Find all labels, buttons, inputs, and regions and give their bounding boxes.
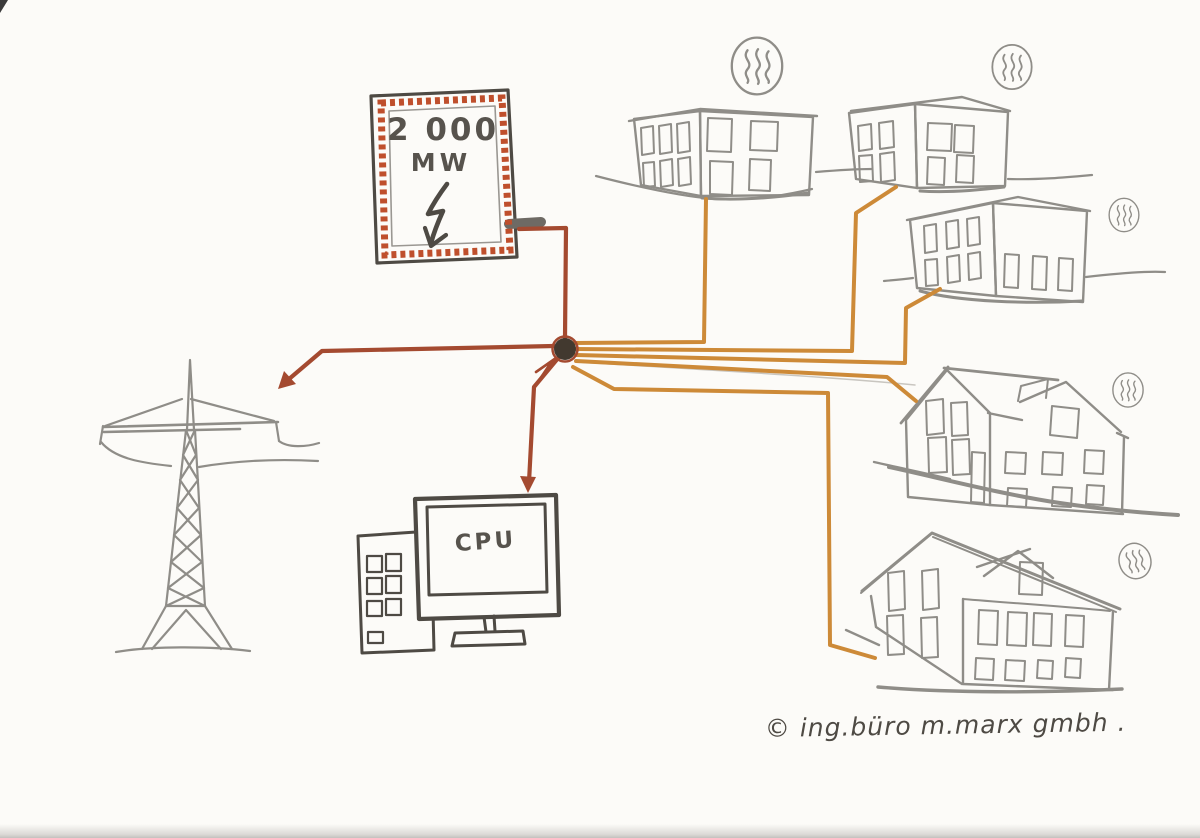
cpu-unit (358, 495, 559, 653)
cable-node-to-cpu (529, 357, 559, 482)
pylon-ground (116, 647, 250, 652)
building-5 (861, 533, 1120, 690)
building-2-roof-line (851, 97, 1010, 111)
power-pylon (100, 360, 319, 652)
cable-plant-to-node (519, 228, 566, 338)
ground-building-5-left (846, 630, 879, 645)
plant-unit-label: MW (411, 148, 471, 177)
pylon-crossarm (103, 422, 278, 432)
heat-cable-building-2 (575, 187, 896, 351)
heat-cable-building-1 (574, 199, 706, 343)
scan-corner-mark (0, 0, 8, 13)
building-4-front-wall (988, 413, 1128, 514)
arrowheads (278, 371, 536, 493)
plant-outlet-stub (509, 222, 541, 224)
heat-cable-building-5 (573, 367, 875, 658)
building-4 (901, 367, 1128, 514)
cpu-tower-buttons (367, 554, 401, 643)
building-4-dormer (1018, 379, 1048, 401)
building-2-front-wall (915, 104, 1008, 188)
heat-waves-icon (1115, 540, 1155, 583)
pylon-legs (142, 606, 232, 649)
building-1-front-wall (700, 111, 813, 196)
heat-waves-icon (1113, 373, 1143, 407)
paper-edge-shadow (0, 824, 1200, 838)
building-4-cross-gable (1020, 382, 1121, 432)
building-2 (849, 97, 1010, 188)
heat-cables (573, 187, 940, 658)
building-1-windows (641, 118, 778, 195)
pylon-lattice-b (166, 430, 204, 606)
power-heat-distribution-sketch: 2 000 MW CPU © ing.büro m.marx gmbh . (0, 0, 1200, 838)
building-3 (907, 197, 1090, 302)
building-1 (629, 109, 817, 196)
distribution-node (554, 338, 576, 360)
cpu-stand-base (452, 631, 525, 646)
ground-building-2 (816, 169, 1092, 179)
cpu-label: CPU (454, 527, 517, 557)
heat-waves-icon (992, 45, 1031, 89)
ground-building-4b (874, 462, 950, 479)
building-4-windows (926, 399, 1104, 507)
scanned-sketch-page: 2 000 MW CPU © ing.büro m.marx gmbh . (0, 0, 1200, 838)
cpu-arrowhead (520, 476, 536, 493)
heat-waves-icon (1109, 198, 1139, 231)
signature-text: © ing.büro m.marx gmbh . (765, 708, 1127, 743)
building-5-windows (887, 562, 1084, 681)
cable-node-to-grid (282, 346, 554, 385)
electric-cables (282, 228, 578, 482)
pylon-mast-top (187, 360, 194, 430)
ground-lines (596, 169, 1178, 692)
pylon-wires (101, 441, 319, 467)
cpu-monitor (415, 495, 559, 619)
heat-waves-icon (732, 38, 782, 95)
building-3-windows (924, 217, 1073, 291)
building-4-gable-face (906, 370, 990, 505)
plant-capacity-label: 2 000 (387, 112, 499, 148)
